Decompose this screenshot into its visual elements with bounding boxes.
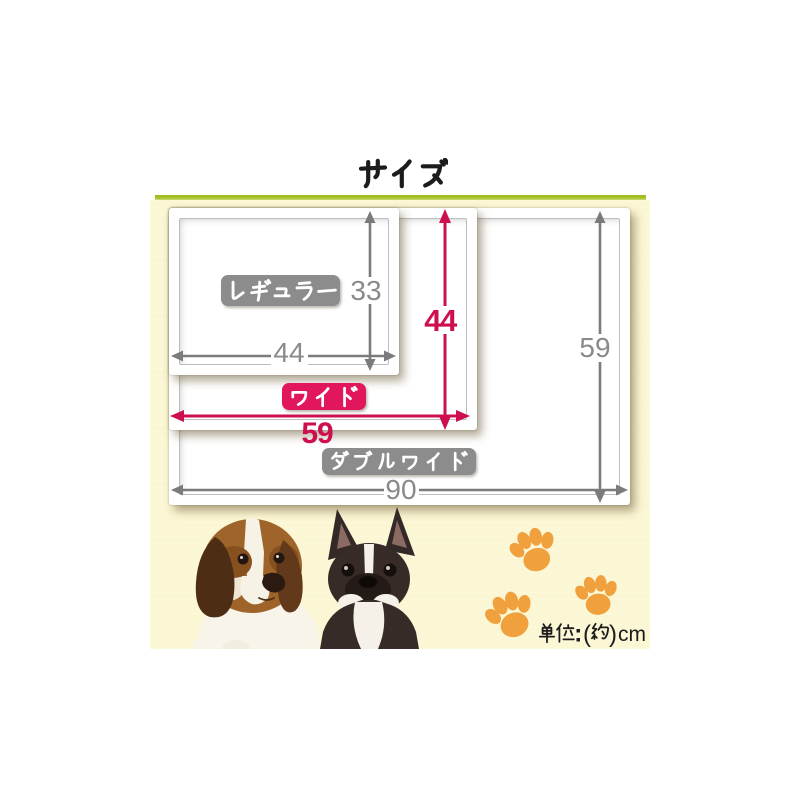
svg-text:90: 90 <box>385 474 416 505</box>
svg-text:44: 44 <box>424 303 458 338</box>
svg-text:): ) <box>609 621 617 648</box>
svg-text:59: 59 <box>301 417 333 450</box>
svg-text:44: 44 <box>273 337 304 368</box>
svg-text:33: 33 <box>350 275 381 306</box>
svg-text:59: 59 <box>579 332 610 363</box>
svg-text:(: ( <box>583 621 591 648</box>
svg-text:cm: cm <box>618 623 646 646</box>
